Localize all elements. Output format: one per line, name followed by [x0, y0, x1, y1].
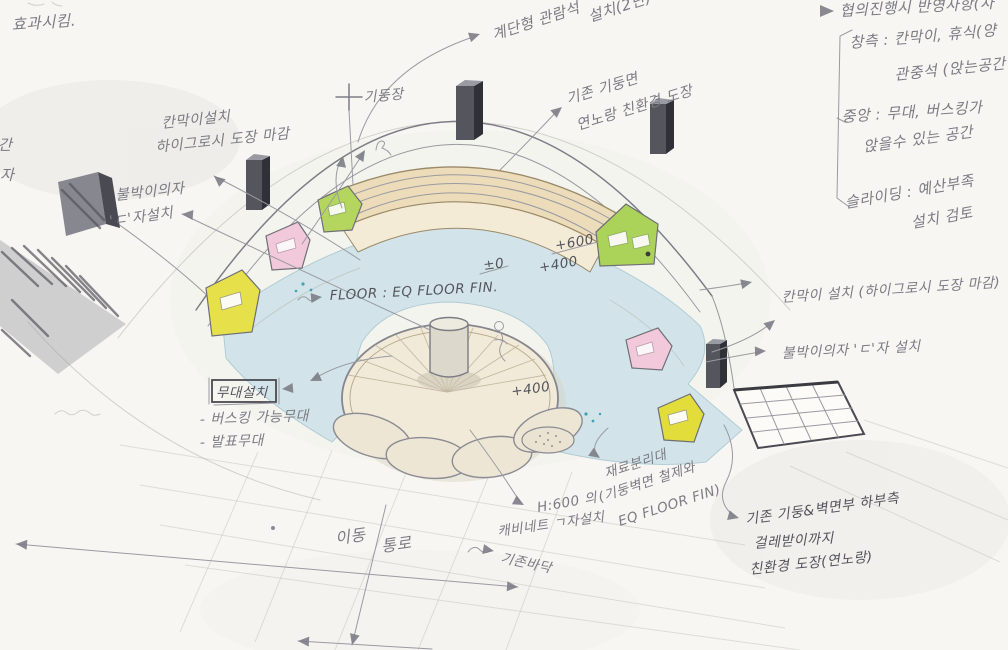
note-stair-1: 계단형 관람석	[490, 0, 584, 44]
header-arrow-icon	[820, 5, 834, 17]
note-corridor-1: 이동	[334, 525, 368, 548]
stage-cylinder	[430, 318, 468, 378]
right-panel-item2-line1: 중앙 : 무대, 버스킹가	[841, 98, 985, 126]
right-panel-item1-line2: 관중석 (앉는공간	[894, 54, 1008, 84]
paved-platform	[734, 382, 864, 448]
right-panel-header: 협의진행시 반영사항(차	[839, 0, 996, 20]
column-left	[246, 154, 270, 210]
sketch-svg: 효과시킴. 간 자 칸막이설치 하이그로시 도장 마감 불박이의자 'ㄷ'자설치…	[0, 0, 1008, 650]
faint-pencil-note	[55, 410, 100, 415]
stage-box-title: 무대설치	[216, 385, 269, 401]
right-panel-item1-line1: 창측 : 칸막이, 휴식(양	[849, 21, 999, 52]
sketch-canvas: 효과시킴. 간 자 칸막이설치 하이그로시 도장 마감 불박이의자 'ㄷ'자설치…	[0, 0, 1008, 650]
right-panel-bracket	[820, 5, 852, 206]
level-ground: ±0	[482, 255, 505, 274]
right-panel: 협의진행시 반영사항(차 창측 : 칸막이, 휴식(양 관중석 (앉는공간 중앙…	[839, 0, 1008, 232]
note-column-top: 기둥장	[363, 86, 406, 106]
note-partition-right: 칸막이 설치 (하이그로시 도장 마감)	[781, 275, 1001, 306]
note-top-left: 효과시킴.	[11, 12, 77, 34]
note-builtin-left-2: 'ㄷ'자설치	[108, 205, 175, 230]
note-builtin-right: 불박이의자 'ㄷ'자 설치	[781, 339, 921, 362]
column-top-middle	[456, 80, 483, 140]
left-wall	[0, 172, 126, 374]
right-panel-item3-line2: 설치 검토	[910, 203, 975, 232]
column-far-right	[706, 339, 727, 388]
edge-marks-top	[28, 2, 62, 6]
stipple-pad	[522, 427, 574, 453]
note-stair-2: 설치(2단)	[586, 0, 654, 26]
note-left-cut-2: 자	[0, 166, 16, 184]
right-panel-item2-line2: 앉을수 있는 공간	[862, 123, 976, 156]
stage-box-item-2: - 발표무대	[200, 433, 266, 451]
note-left-cut-1: 간	[0, 136, 14, 154]
